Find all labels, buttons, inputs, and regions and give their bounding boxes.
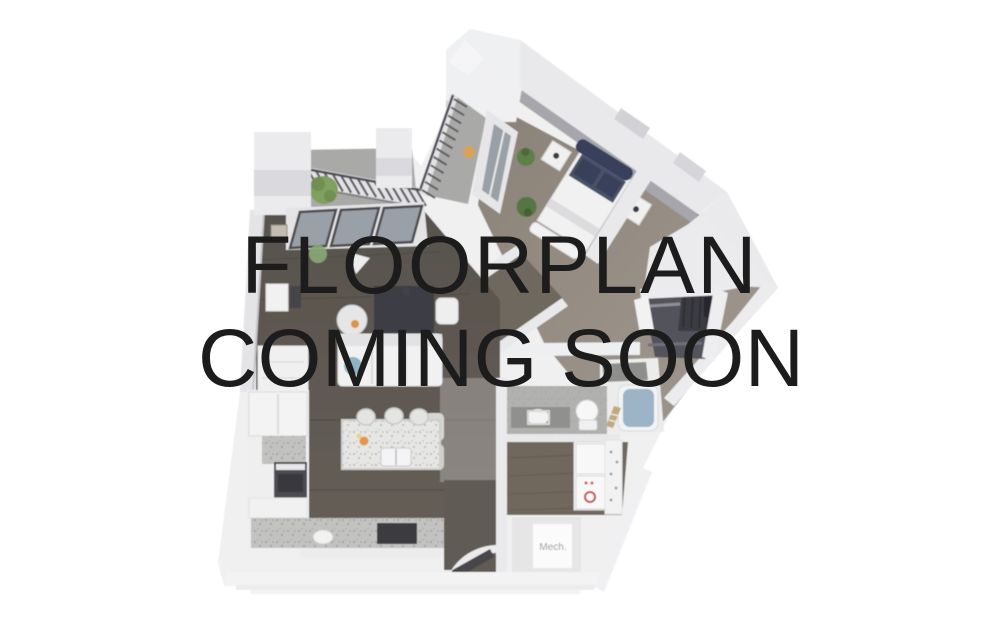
- svg-text:FLOORPLAN: FLOORPLAN: [242, 220, 757, 311]
- svg-text:Mech.: Mech.: [539, 542, 566, 553]
- svg-text:COMING SOON: COMING SOON: [198, 313, 804, 404]
